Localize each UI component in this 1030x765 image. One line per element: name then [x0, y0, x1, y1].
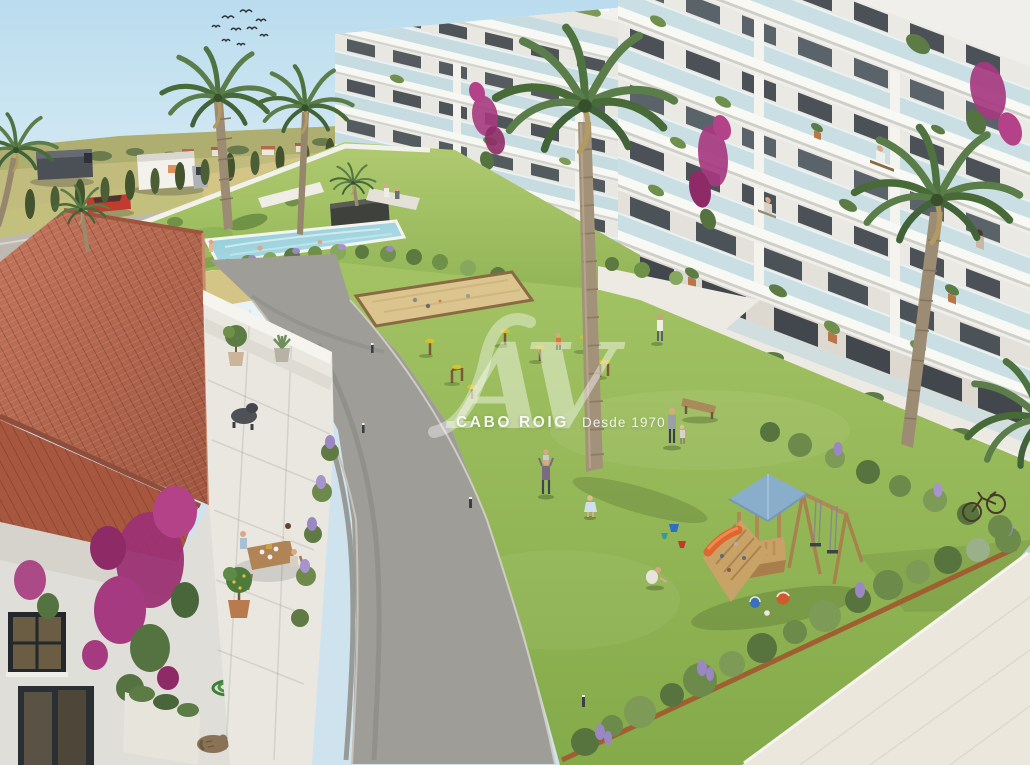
figure-diner: [240, 538, 247, 549]
architectural-render: AV CABO ROIG Desde 1970: [0, 0, 1030, 765]
villa-french-door: [18, 686, 94, 765]
figure-diner: [284, 530, 291, 541]
watermark-logo: AV: [434, 317, 626, 456]
delivery-van: [30, 149, 94, 187]
scene-illustration: AV: [0, 0, 1030, 765]
villa-window: [6, 612, 68, 677]
watermark-logo-text: AV: [445, 317, 626, 456]
figure-diner: [290, 556, 298, 567]
